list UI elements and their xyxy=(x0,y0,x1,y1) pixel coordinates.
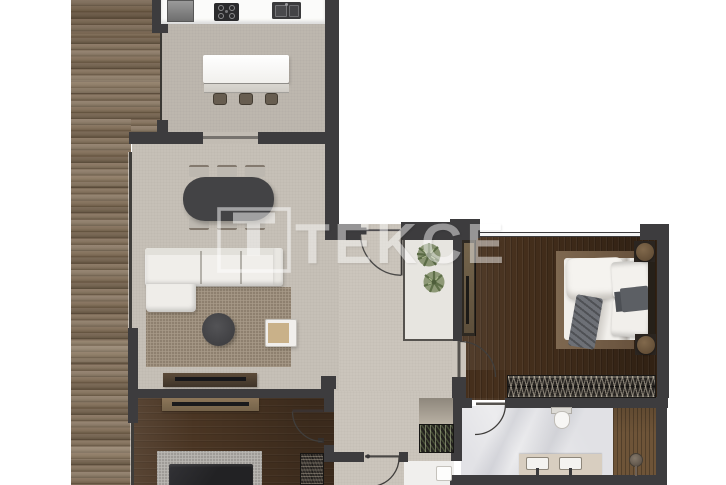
svg-text:TEKCE: TEKCE xyxy=(295,212,508,276)
